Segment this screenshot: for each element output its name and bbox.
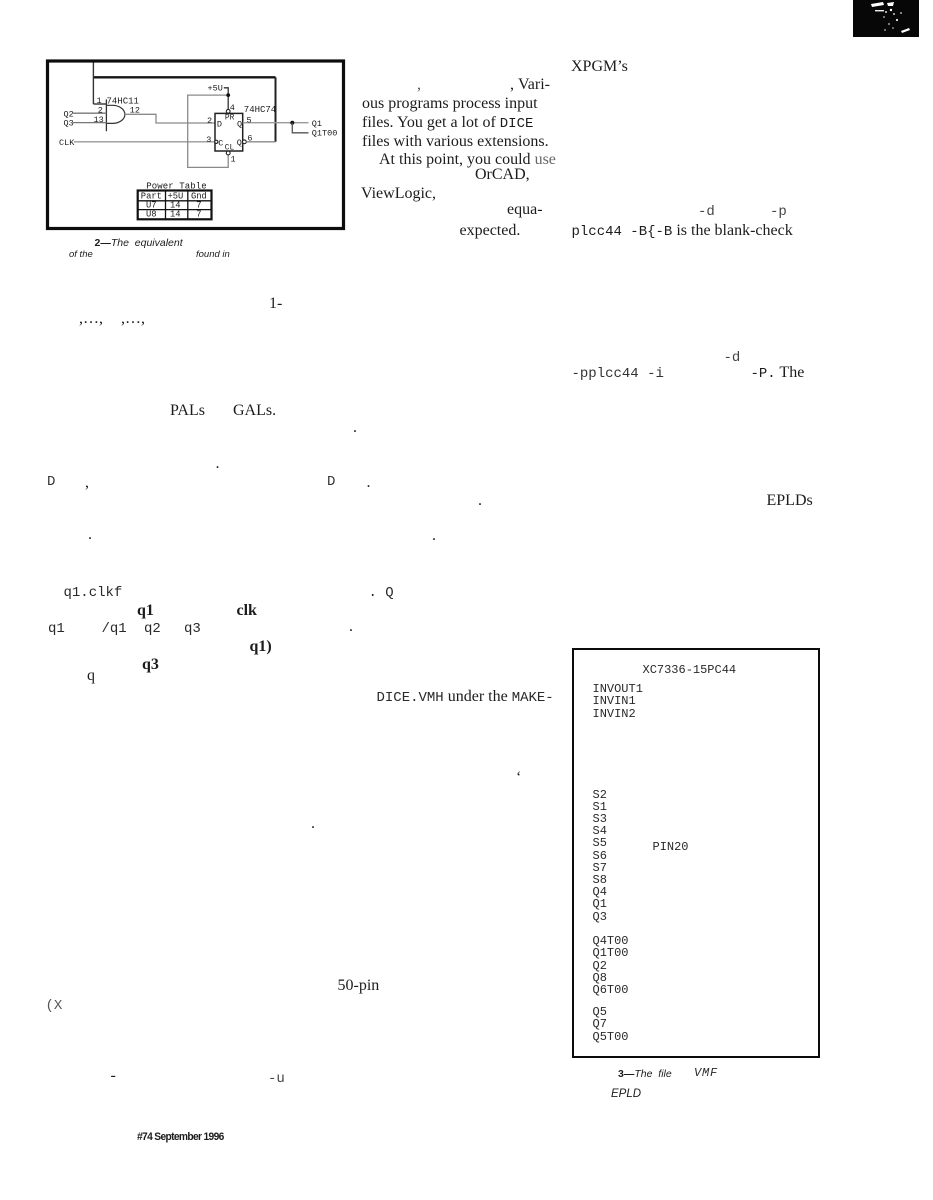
svg-text:13: 13 — [94, 115, 104, 125]
svg-text:Q1T00: Q1T00 — [312, 129, 338, 139]
svg-text:14: 14 — [170, 210, 181, 220]
svg-text:3: 3 — [206, 135, 211, 145]
svg-text:D: D — [217, 119, 222, 129]
svg-text:Q: Q — [237, 138, 242, 148]
svg-text:Q: Q — [237, 119, 242, 129]
svg-text:C: C — [218, 139, 223, 149]
svg-text:74HC74: 74HC74 — [244, 105, 276, 115]
svg-text:Q3: Q3 — [64, 119, 74, 129]
svg-text:CLK: CLK — [59, 138, 75, 148]
svg-text:+5U: +5U — [208, 84, 223, 94]
svg-text:5: 5 — [247, 116, 252, 126]
svg-text:U8: U8 — [146, 210, 157, 220]
svg-text:1: 1 — [231, 154, 236, 164]
svg-text:CL: CL — [225, 144, 235, 152]
svg-text:1: 1 — [97, 96, 102, 106]
svg-text:4: 4 — [230, 103, 235, 113]
svg-text:6: 6 — [247, 134, 252, 144]
svg-text:7: 7 — [196, 210, 201, 220]
svg-text:PR: PR — [225, 114, 235, 122]
svg-text:12: 12 — [130, 106, 140, 116]
svg-text:2: 2 — [207, 116, 212, 126]
